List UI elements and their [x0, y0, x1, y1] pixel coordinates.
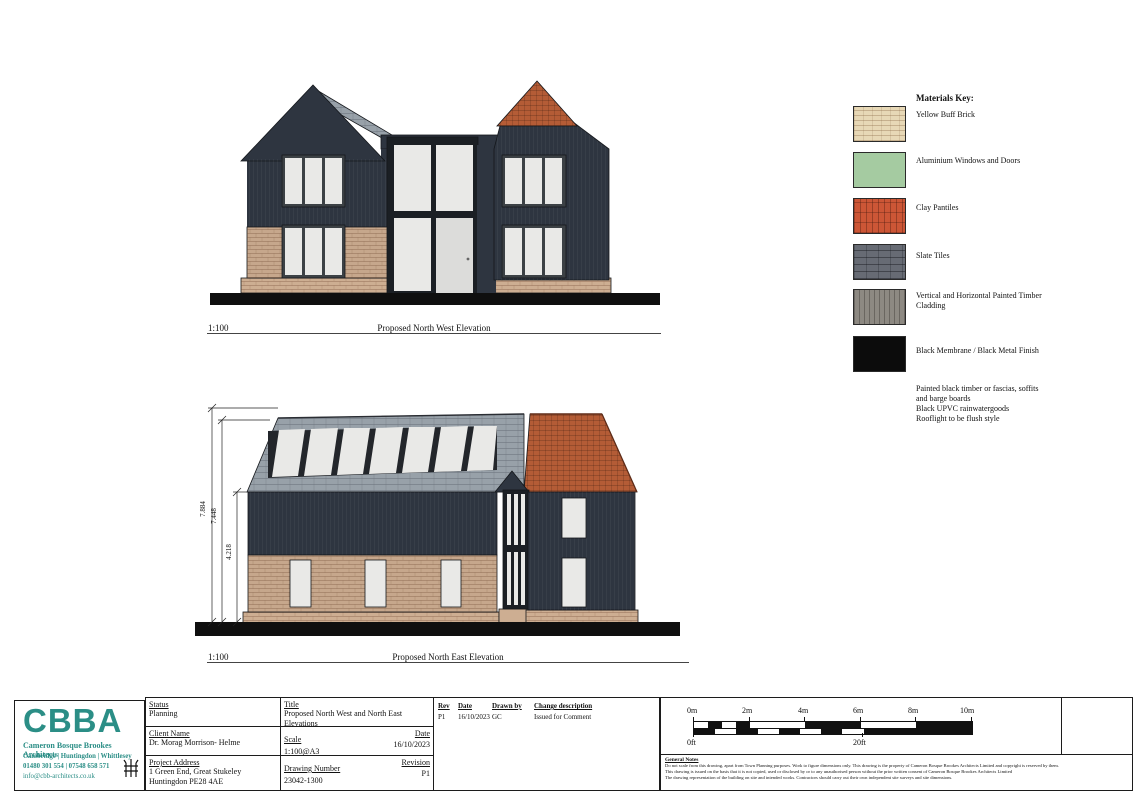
- scale-bar: [693, 721, 973, 735]
- drawing-number-value: 23042-1300: [284, 776, 430, 786]
- logo-box: CBBA Cameron Bosque Brookes Architects C…: [14, 700, 145, 791]
- swatch-slate-tiles: [853, 244, 906, 280]
- title-cell: Title Proposed North West and North East…: [280, 697, 434, 727]
- project-address-cell: Project Address 1 Green End, Great Stuke…: [145, 755, 281, 791]
- nw-caption-row: 1:100 Proposed North West Elevation: [207, 320, 661, 334]
- rev-header: Rev: [438, 702, 450, 710]
- rev-date-header: Date: [458, 702, 472, 710]
- drawing-title-label: Title: [284, 700, 430, 709]
- date-value: 16/10/2023: [394, 740, 430, 750]
- nw-glazed-link: [387, 137, 478, 297]
- scale-bar-box: 0m 2m 4m 6m 8m 10m 0ft 20ft: [660, 697, 1062, 755]
- materials-key-label: Vertical and Horizontal Painted Timber C…: [916, 291, 1054, 310]
- north-east-elevation-drawing: [190, 400, 690, 650]
- materials-key-title: Materials Key:: [916, 93, 974, 103]
- nw-link-return-wall: [477, 145, 496, 293]
- scale-date-cell: Scale Date 1:100@A3 16/10/2023: [280, 726, 434, 756]
- ne-caption: Proposed North East Elevation: [207, 652, 689, 662]
- nw-left-lower-window: [282, 225, 345, 278]
- drawing-number-cell: Drawing Number Revision 23042-1300 P1: [280, 755, 434, 791]
- general-notes-line: The drawing representation of the buildi…: [665, 775, 1128, 781]
- scale-bar-6m: 6m: [853, 706, 863, 715]
- status-value: Planning: [149, 709, 277, 719]
- ne-rooflight-bank: [268, 426, 497, 478]
- rev-change-header: Change description: [534, 702, 592, 710]
- scale-bar-8m: 8m: [908, 706, 918, 715]
- ne-right-upper-window: [562, 498, 586, 538]
- scale-bar-0ft: 0ft: [687, 738, 696, 747]
- materials-key-label: Aluminium Windows and Doors: [916, 156, 1054, 166]
- swatch-timber-cladding: [853, 289, 906, 325]
- scale-bar-0m: 0m: [687, 706, 697, 715]
- swatch-yellow-buff-brick: [853, 106, 906, 142]
- scale-bar-20ft: 20ft: [853, 738, 866, 747]
- ne-ground-line: [195, 622, 680, 636]
- rev-drawnby-header: Drawn by: [492, 702, 522, 710]
- client-label: Client Name: [149, 729, 277, 738]
- ne-clay-roof: [524, 414, 637, 492]
- materials-note-line: Painted black timber or fascias, soffits: [916, 384, 1066, 394]
- rev-value: P1: [438, 713, 445, 721]
- materials-note-line: and barge boards: [916, 394, 1066, 404]
- ne-glazed-slot: [495, 471, 529, 609]
- logo-acronym: CBBA: [23, 703, 122, 739]
- empty-title-block-cell: [1061, 697, 1133, 755]
- nw-left-upper-window: [282, 155, 345, 207]
- project-address-line1: 1 Green End, Great Stukeley: [149, 767, 277, 777]
- firm-email: info@cbb-architects.co.uk: [23, 773, 95, 780]
- materials-key-label: Slate Tiles: [916, 251, 1054, 261]
- dimension-7448: 7.448: [210, 498, 218, 534]
- nw-right-upper-window: [502, 155, 566, 207]
- nw-ground-line: [210, 293, 660, 305]
- ne-caption-row: 1:100 Proposed North East Elevation: [207, 649, 689, 663]
- rev-change-value: Issued for Comment: [534, 713, 591, 721]
- ne-right-lower-window: [562, 558, 586, 607]
- scale-bar-10m: 10m: [960, 706, 974, 715]
- north-west-elevation-drawing: [205, 65, 665, 315]
- logo-emblem-icon: [123, 759, 139, 779]
- revision-label: Revision: [402, 758, 430, 767]
- revision-table: Rev Date Drawn by Change description P1 …: [433, 697, 660, 791]
- swatch-black-membrane: [853, 336, 906, 372]
- dimension-7884: 7.884: [199, 491, 207, 527]
- project-address-label: Project Address: [149, 758, 277, 767]
- status-cell: Status Planning: [145, 697, 281, 727]
- scale-bar-4m: 4m: [798, 706, 808, 715]
- dimension-4218: 4.218: [225, 534, 233, 570]
- date-label: Date: [415, 729, 430, 738]
- scale-label: Scale: [284, 735, 301, 744]
- drawing-number-label: Drawing Number: [284, 764, 340, 773]
- materials-note-line: Rooflight to be flush style: [916, 414, 1066, 424]
- ne-right-block: [528, 492, 635, 610]
- rev-drawnby-value: GC: [492, 713, 502, 721]
- scale-bar-2m: 2m: [742, 706, 752, 715]
- nw-entrance-door: [436, 218, 473, 294]
- drawing-sheet: 1:100 Proposed North West Elevation: [0, 0, 1146, 800]
- nw-right-lower-window: [502, 225, 566, 278]
- nw-caption: Proposed North West Elevation: [207, 323, 661, 333]
- rev-date-value: 16/10/2023: [458, 713, 490, 721]
- materials-key-label: Clay Pantiles: [916, 203, 1054, 213]
- swatch-aluminium-windows: [853, 152, 906, 188]
- client-value: Dr. Morag Morrison- Helme: [149, 738, 277, 748]
- materials-key-label: Black Membrane / Black Metal Finish: [916, 346, 1054, 356]
- swatch-clay-pantiles: [853, 198, 906, 234]
- status-label: Status: [149, 700, 277, 709]
- firm-locations: Cambridge | Huntingdon | Whittlesey: [23, 753, 132, 760]
- general-notes-box: General Notes Do not scale from this dra…: [660, 754, 1133, 791]
- materials-note-line: Black UPVC rainwatergoods: [916, 404, 1066, 414]
- firm-phones: 01480 301 554 | 07548 658 571: [23, 763, 109, 770]
- client-cell: Client Name Dr. Morag Morrison- Helme: [145, 726, 281, 756]
- materials-key-label: Yellow Buff Brick: [916, 110, 1054, 120]
- project-address-line2: Huntingdon PE28 4AE: [149, 777, 277, 787]
- revision-value: P1: [422, 769, 430, 779]
